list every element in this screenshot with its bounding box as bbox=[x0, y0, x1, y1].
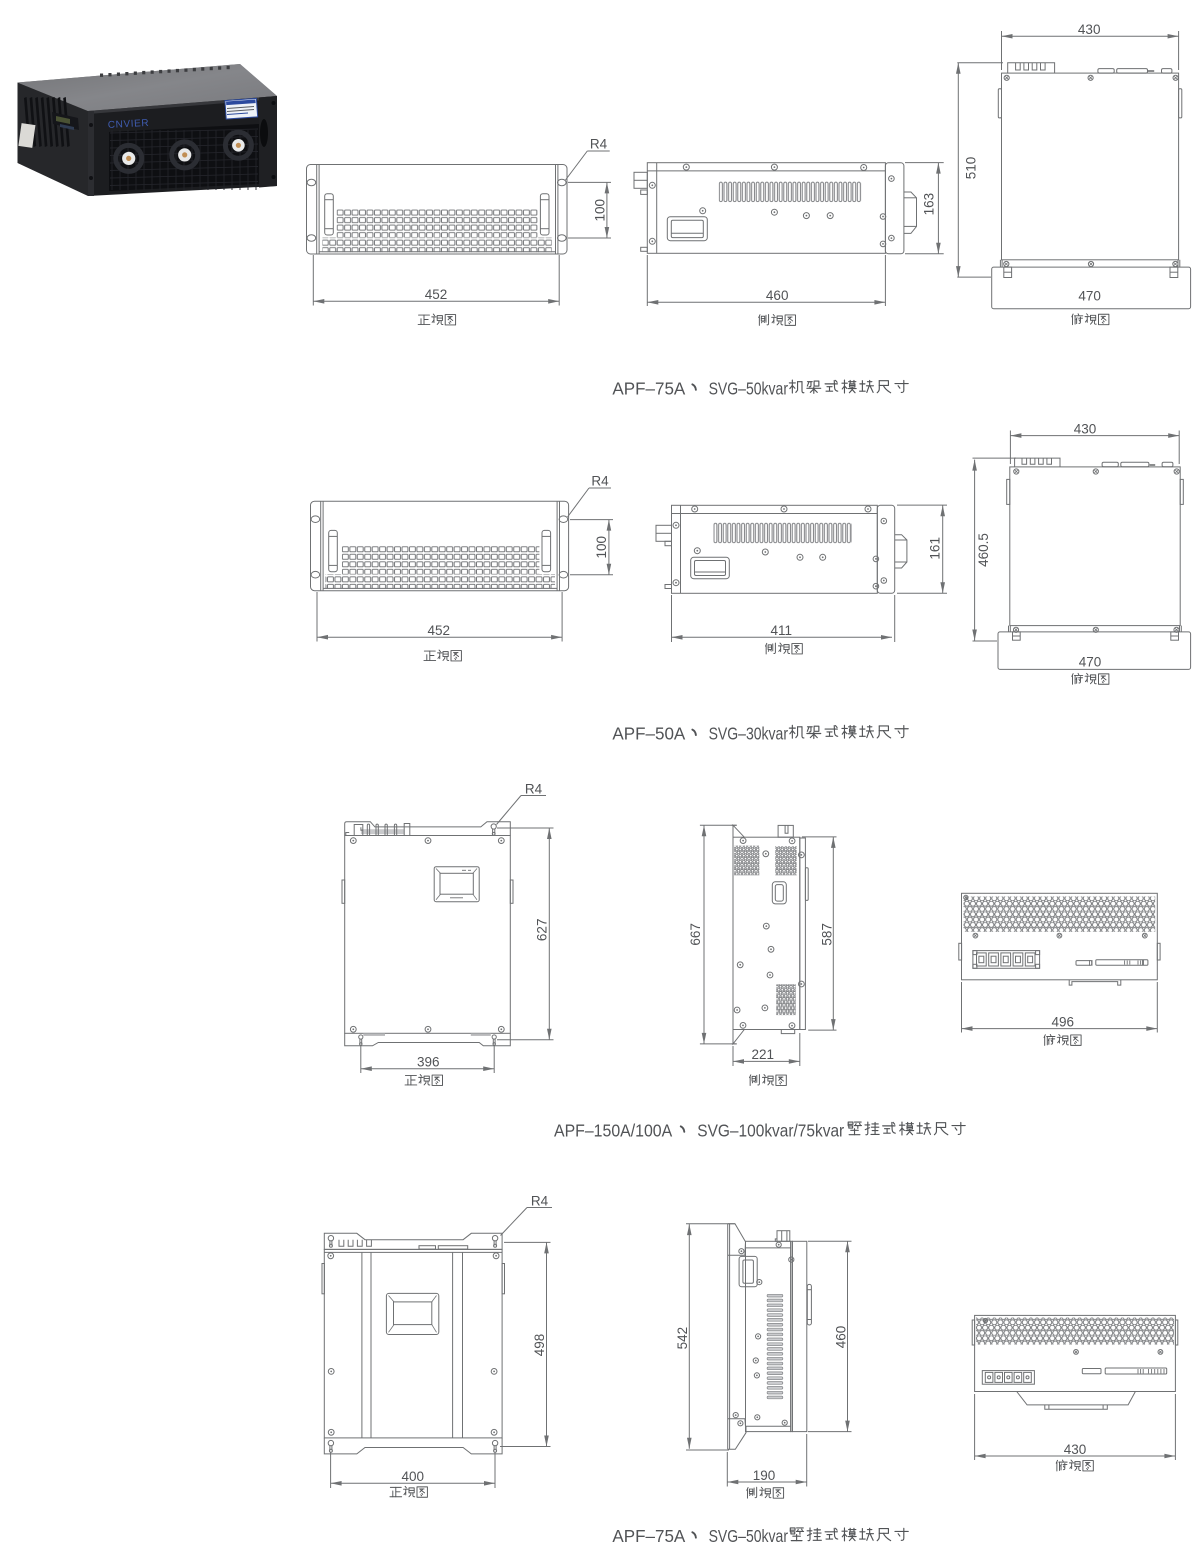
svg-text:221: 221 bbox=[752, 1047, 775, 1062]
svg-text:163: 163 bbox=[921, 193, 936, 216]
svg-text:400: 400 bbox=[402, 1469, 425, 1484]
svg-text:460: 460 bbox=[766, 288, 789, 303]
svg-text:R4: R4 bbox=[591, 474, 609, 489]
svg-text:190: 190 bbox=[753, 1468, 776, 1483]
svg-text:100: 100 bbox=[592, 199, 607, 222]
svg-text:452: 452 bbox=[425, 287, 448, 302]
svg-text:396: 396 bbox=[417, 1055, 440, 1070]
svg-text:R4: R4 bbox=[531, 1194, 549, 1209]
svg-text:SVG–50kvar: SVG–50kvar bbox=[709, 378, 789, 398]
svg-text:CNVIER: CNVIER bbox=[108, 118, 150, 131]
svg-text:R4: R4 bbox=[525, 782, 543, 797]
svg-text:460.5: 460.5 bbox=[976, 533, 991, 567]
svg-text:100: 100 bbox=[594, 536, 609, 559]
svg-text:452: 452 bbox=[428, 623, 451, 638]
svg-text:APF–150A/100A: APF–150A/100A bbox=[554, 1120, 673, 1140]
svg-text:627: 627 bbox=[535, 919, 550, 942]
svg-text:411: 411 bbox=[771, 623, 793, 638]
svg-text:430: 430 bbox=[1064, 1442, 1087, 1457]
svg-text:SVG–100kvar/75kvar: SVG–100kvar/75kvar bbox=[697, 1120, 844, 1140]
svg-text:496: 496 bbox=[1052, 1014, 1075, 1029]
svg-text:587: 587 bbox=[819, 923, 834, 946]
svg-text:542: 542 bbox=[675, 1327, 690, 1350]
svg-text:498: 498 bbox=[532, 1334, 547, 1357]
svg-text:APF–75A: APF–75A bbox=[612, 378, 685, 398]
svg-text:470: 470 bbox=[1078, 288, 1101, 303]
svg-text:667: 667 bbox=[688, 923, 703, 946]
svg-text:APF–75A: APF–75A bbox=[612, 1526, 685, 1546]
svg-text:APF–50A: APF–50A bbox=[612, 724, 685, 744]
svg-text:SVG–50kvar: SVG–50kvar bbox=[709, 1526, 789, 1546]
svg-text:460: 460 bbox=[834, 1326, 849, 1349]
svg-text:430: 430 bbox=[1074, 421, 1097, 436]
svg-text:SVG–30kvar: SVG–30kvar bbox=[709, 724, 789, 744]
svg-text:R4: R4 bbox=[590, 137, 608, 152]
svg-text:470: 470 bbox=[1079, 654, 1102, 669]
svg-text:430: 430 bbox=[1078, 22, 1101, 37]
svg-text:161: 161 bbox=[927, 537, 942, 560]
svg-text:510: 510 bbox=[963, 157, 978, 180]
